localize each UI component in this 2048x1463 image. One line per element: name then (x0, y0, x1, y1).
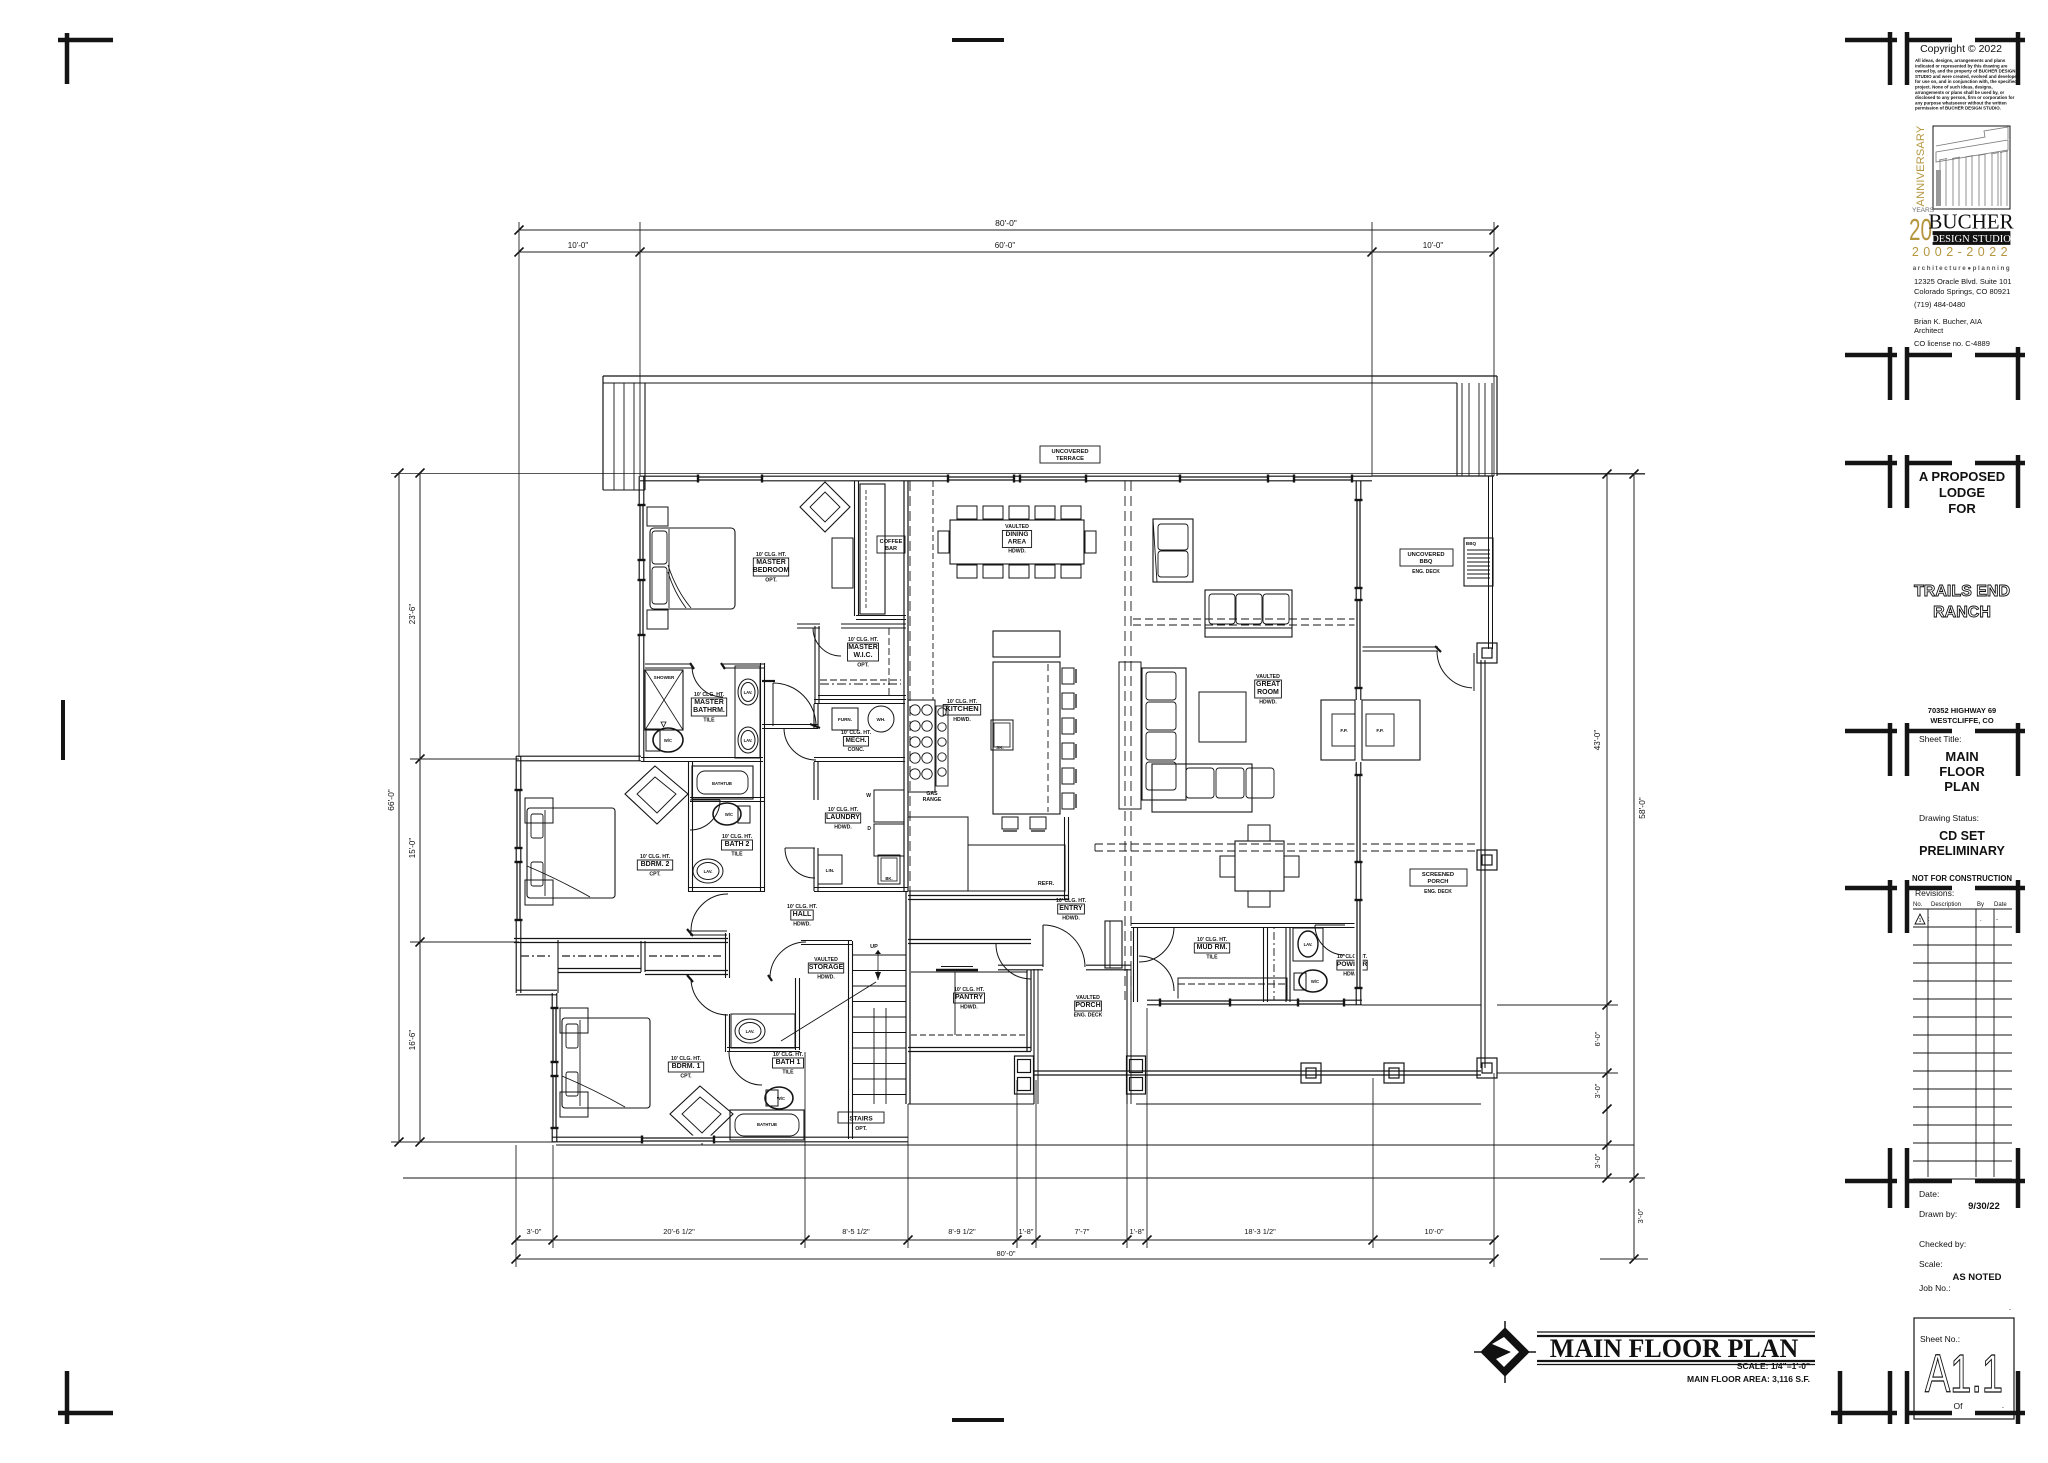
svg-text:HDWD.: HDWD. (953, 717, 971, 723)
svg-text:3'-0": 3'-0" (1593, 1153, 1602, 1168)
svg-text:PRELIMINARY: PRELIMINARY (1919, 844, 2005, 858)
svg-text:POWDER: POWDER (1337, 961, 1368, 968)
svg-text:MECH.: MECH. (846, 737, 867, 744)
svg-text:12325 Oracle Blvd. Suite 101: 12325 Oracle Blvd. Suite 101 (1914, 277, 2012, 286)
svg-text:RANCH: RANCH (1933, 604, 1991, 621)
svg-text:TRAILS END: TRAILS END (1914, 583, 2010, 600)
svg-text:BBQ: BBQ (1420, 559, 1433, 565)
svg-text:PANTRY: PANTRY (955, 994, 983, 1001)
svg-text:ENG. DECK: ENG. DECK (1074, 1013, 1103, 1019)
svg-text:Drawn by:: Drawn by: (1919, 1209, 1957, 1219)
svg-text:Sheet Title:: Sheet Title: (1919, 734, 1962, 744)
svg-text:Checked by:: Checked by: (1919, 1239, 1966, 1249)
svg-text:REFR.: REFR. (1038, 881, 1055, 887)
svg-text:16'-6": 16'-6" (408, 1030, 417, 1051)
svg-text:FOR: FOR (1948, 501, 1976, 516)
svg-text:CD SET: CD SET (1939, 829, 1985, 843)
svg-text:·: · (2002, 1403, 2005, 1412)
svg-text:CPT.: CPT. (680, 1074, 692, 1080)
svg-text:20'-6 1/2": 20'-6 1/2" (663, 1227, 695, 1236)
svg-text:10'-0": 10'-0" (568, 241, 589, 250)
svg-text:Of: Of (1954, 1401, 1964, 1411)
svg-text:ENG. DECK: ENG. DECK (1424, 889, 1452, 895)
svg-text:BATHTUB: BATHTUB (712, 781, 732, 786)
svg-text:60'-0": 60'-0" (995, 241, 1016, 250)
svg-text:10' CLG. HT.: 10' CLG. HT. (828, 807, 859, 813)
svg-text:18'-3 1/2": 18'-3 1/2" (1244, 1227, 1276, 1236)
svg-text:3'-0": 3'-0" (1593, 1083, 1602, 1098)
svg-text:LAUNDRY: LAUNDRY (826, 814, 860, 821)
svg-text:BUCHER: BUCHER (1928, 210, 2013, 234)
svg-text:3'-0": 3'-0" (1636, 1208, 1645, 1223)
svg-text:Colorado Springs, CO 80921: Colorado Springs, CO 80921 (1914, 287, 2010, 296)
svg-text:VAULTED: VAULTED (1256, 674, 1280, 680)
svg-text:F.P.: F.P. (1340, 728, 1347, 733)
svg-text:W/C: W/C (1311, 979, 1319, 984)
svg-text:HDWD.: HDWD. (1062, 916, 1080, 922)
svg-text:permission of BUCHER DESIGN ST: permission of BUCHER DESIGN STUDIO. (1915, 106, 2001, 111)
svg-text:disclosed to any person, firm: disclosed to any person, firm or corpora… (1915, 95, 2015, 100)
svg-text:A1.1: A1.1 (1925, 1344, 2003, 1404)
svg-text:BEDROOM: BEDROOM (753, 567, 790, 574)
svg-text:BAR: BAR (885, 546, 897, 552)
svg-text:Job No.:: Job No.: (1919, 1283, 1951, 1293)
svg-text:Description: Description (1931, 902, 1961, 908)
svg-text:VAULTED: VAULTED (814, 957, 838, 963)
svg-text:LIN.: LIN. (826, 868, 835, 873)
svg-text:1'-8": 1'-8" (1019, 1227, 1034, 1236)
svg-text:10' CLG. HT.: 10' CLG. HT. (671, 1056, 702, 1062)
svg-text:VAULTED: VAULTED (1005, 524, 1029, 530)
svg-text:for use on, and in conjunction: for use on, and in conjunction with, the… (1915, 79, 2017, 84)
svg-text:MUD RM.: MUD RM. (1197, 944, 1228, 951)
svg-text:NOT FOR CONSTRUCTION: NOT FOR CONSTRUCTION (1912, 874, 2012, 883)
svg-text:PORCH: PORCH (1428, 879, 1449, 885)
svg-text:W/C: W/C (725, 812, 733, 817)
svg-text:ENG. DECK: ENG. DECK (1412, 569, 1440, 575)
svg-text:6'-0": 6'-0" (1593, 1031, 1602, 1046)
svg-text:ENTRY: ENTRY (1059, 905, 1083, 912)
svg-text:10' CLG. HT.: 10' CLG. HT. (954, 987, 985, 993)
svg-text:-: - (1996, 917, 1998, 923)
svg-text:MASTER: MASTER (756, 559, 786, 566)
svg-text:·: · (2009, 1305, 2012, 1314)
svg-text:SK.: SK. (996, 745, 1004, 750)
svg-text:HDWD.: HDWD. (834, 825, 852, 831)
svg-text:10'-0": 10'-0" (1424, 1227, 1443, 1236)
svg-text:owned by, and the property of: owned by, and the property of BUCHER DES… (1915, 69, 2015, 74)
svg-text:COFFEE: COFFEE (880, 539, 903, 545)
svg-text:indicated or represented by th: indicated or represented by this drawing… (1915, 63, 2008, 68)
svg-text:MAIN: MAIN (1945, 749, 1978, 764)
svg-text:2002-2022: 2002-2022 (1912, 245, 2012, 259)
svg-text:HDWD.: HDWD. (960, 1005, 978, 1011)
svg-text:OPT.: OPT. (765, 578, 777, 584)
svg-text:80'-0": 80'-0" (995, 218, 1017, 228)
svg-text:LAV.: LAV. (744, 690, 753, 695)
svg-text:CONC.: CONC. (848, 747, 865, 753)
svg-text:project. None of such ideas,: project. None of such ideas, designs, (1915, 85, 1993, 90)
svg-text:BATH 1: BATH 1 (776, 1059, 801, 1066)
svg-text:PLAN: PLAN (1944, 779, 1979, 794)
svg-text:PORCH: PORCH (1075, 1002, 1100, 1009)
svg-text:FLOOR: FLOOR (1939, 764, 1985, 779)
svg-text:WESTCLIFFE, CO: WESTCLIFFE, CO (1930, 716, 1993, 725)
svg-text:(719) 484-0480: (719) 484-0480 (1914, 300, 1965, 309)
svg-text:MASTER: MASTER (694, 699, 724, 706)
svg-text:Revisions:: Revisions: (1915, 888, 1954, 898)
svg-text:CO license no. C-4889: CO license no. C-4889 (1914, 339, 1990, 348)
svg-text:7'-7": 7'-7" (1075, 1227, 1090, 1236)
svg-text:W/C: W/C (664, 738, 672, 743)
svg-text:BATH 2: BATH 2 (725, 841, 750, 848)
svg-text:HDWD.: HDWD. (1008, 549, 1026, 555)
svg-text:3'-0": 3'-0" (527, 1227, 542, 1236)
svg-text:58'-0": 58'-0" (1637, 797, 1647, 819)
svg-text:Drawing Status:: Drawing Status: (1919, 813, 1979, 823)
svg-text:D: D (867, 826, 871, 832)
svg-text:BATHTUB: BATHTUB (757, 1122, 777, 1127)
svg-text:Date:: Date: (1919, 1189, 1939, 1199)
svg-text:10' CLG. HT.: 10' CLG. HT. (640, 854, 671, 860)
svg-text:BDRM. 1: BDRM. 1 (672, 1063, 701, 1070)
svg-text:All ideas, designs, arrangemen: All ideas, designs, arrangements and pla… (1915, 58, 2006, 63)
svg-text:architecture●planning: architecture●planning (1913, 265, 2012, 272)
svg-text:10' CLG. HT.: 10' CLG. HT. (722, 834, 753, 840)
svg-text:KITCHEN: KITCHEN (945, 704, 978, 713)
svg-text:10' CLG. HT.: 10' CLG. HT. (787, 904, 818, 910)
svg-text:LAV.: LAV. (744, 738, 753, 743)
svg-text:10'-0": 10'-0" (1423, 241, 1444, 250)
svg-text:SCALE: 1/4"=1'-0": SCALE: 1/4"=1'-0" (1737, 1361, 1810, 1371)
svg-text:70352 HIGHWAY 69: 70352 HIGHWAY 69 (1928, 706, 1996, 715)
svg-text:43'-0": 43'-0" (1593, 730, 1602, 751)
svg-text:8'-5 1/2": 8'-5 1/2" (842, 1227, 870, 1236)
svg-text:10' CLG. HT.: 10' CLG. HT. (1337, 954, 1368, 960)
svg-text:SHOWER: SHOWER (654, 675, 675, 680)
svg-text:HDWD.: HDWD. (1259, 700, 1277, 706)
svg-text:Scale:: Scale: (1919, 1259, 1943, 1269)
svg-text:8'-9 1/2": 8'-9 1/2" (948, 1227, 976, 1236)
svg-text:TILE: TILE (703, 718, 715, 724)
svg-text:15'-0": 15'-0" (408, 838, 417, 859)
svg-text:Copyright © 2022: Copyright © 2022 (1920, 43, 2002, 55)
svg-text:CPT.: CPT. (649, 872, 661, 878)
svg-text:W: W (866, 793, 871, 799)
svg-text:No.: No. (1913, 902, 1923, 908)
svg-text:F.P.: F.P. (1376, 728, 1383, 733)
svg-text:HDWD.: HDWD. (793, 922, 811, 928)
svg-text:arrangements or plans shall be: arrangements or plans shall be used by, … (1915, 90, 2005, 95)
svg-text:WH.: WH. (877, 717, 886, 722)
svg-text:VAULTED: VAULTED (1076, 995, 1100, 1001)
svg-text:MAIN FLOOR PLAN: MAIN FLOOR PLAN (1550, 1334, 1799, 1363)
svg-text:TILE: TILE (731, 852, 743, 858)
svg-text:10' CLG. HT.: 10' CLG. HT. (1197, 937, 1228, 943)
svg-text:BBQ: BBQ (1466, 541, 1477, 546)
svg-text:10' CLG. HT.: 10' CLG. HT. (848, 637, 879, 643)
svg-text:TILE: TILE (782, 1070, 794, 1076)
svg-text:Brian K. Bucher, AIA: Brian K. Bucher, AIA (1914, 317, 1982, 326)
svg-text:10' CLG. HT.: 10' CLG. HT. (1056, 898, 1087, 904)
svg-text:Architect: Architect (1914, 326, 1944, 335)
svg-text:MAIN FLOOR AREA: 3,116 S.F.: MAIN FLOOR AREA: 3,116 S.F. (1687, 1374, 1810, 1384)
svg-text:STAIRS: STAIRS (849, 1116, 873, 1123)
svg-text:10' CLG. HT.: 10' CLG. HT. (756, 552, 787, 558)
svg-text:ROOM: ROOM (1257, 689, 1279, 696)
svg-text:66'-0": 66'-0" (386, 789, 396, 811)
svg-text:UNCOVERED: UNCOVERED (1051, 449, 1088, 455)
svg-text:9/30/22: 9/30/22 (1968, 1201, 2000, 1212)
svg-text:FURN.: FURN. (838, 717, 852, 722)
svg-text:W.I.C.: W.I.C. (853, 652, 872, 659)
svg-text:HALL: HALL (793, 911, 812, 918)
svg-text:LAV.: LAV. (1304, 942, 1313, 947)
svg-text:UP: UP (870, 944, 878, 950)
svg-text:BATHRM.: BATHRM. (693, 707, 725, 714)
svg-text:A PROPOSED: A PROPOSED (1919, 469, 2005, 484)
svg-text:23'-6": 23'-6" (408, 604, 417, 625)
svg-text:10' CLG. HT.: 10' CLG. HT. (841, 730, 872, 736)
svg-text:RANGE: RANGE (923, 797, 942, 803)
svg-text:Date: Date (1994, 902, 2007, 908)
svg-text:any purpose whatsoever without: any purpose whatsoever without the writt… (1915, 100, 2007, 105)
svg-text:1'-8": 1'-8" (1130, 1227, 1145, 1236)
svg-text:HDWD.: HDWD. (817, 975, 835, 981)
svg-text:AS NOTED: AS NOTED (1952, 1272, 2001, 1283)
svg-text:LAV.: LAV. (704, 869, 713, 874)
svg-text:AREA: AREA (1008, 539, 1027, 546)
svg-text:Sheet No.:: Sheet No.: (1920, 1334, 1960, 1344)
svg-text:MASTER: MASTER (848, 644, 878, 651)
svg-text:LODGE: LODGE (1939, 485, 1986, 500)
svg-text:DINING: DINING (1006, 531, 1029, 538)
svg-text:10' CLG. HT.: 10' CLG. HT. (773, 1052, 804, 1058)
svg-text:UNCOVERED: UNCOVERED (1407, 552, 1444, 558)
svg-text:1: 1 (1919, 918, 1922, 924)
svg-text:TILE: TILE (1206, 955, 1218, 961)
svg-text:LAV.: LAV. (746, 1029, 755, 1034)
svg-text:STORAGE: STORAGE (809, 964, 844, 971)
svg-text:SCREENED: SCREENED (1422, 872, 1454, 878)
svg-text:BK.: BK. (885, 876, 892, 881)
svg-text:TERRACE: TERRACE (1056, 456, 1084, 462)
svg-text:By: By (1977, 902, 1984, 908)
svg-text:80'-0": 80'-0" (996, 1249, 1015, 1258)
svg-text:ANNIVERSARY: ANNIVERSARY (1915, 125, 1927, 206)
svg-text:OPT.: OPT. (855, 1126, 867, 1132)
svg-text:W/C: W/C (777, 1096, 785, 1101)
svg-text:OPT.: OPT. (857, 663, 869, 669)
svg-text:STUDIO and were created, evolv: STUDIO and were created, evolved and dev… (1915, 74, 2020, 79)
svg-text:10' CLG. HT.: 10' CLG. HT. (694, 692, 725, 698)
svg-text:DESIGN STUDIO: DESIGN STUDIO (1931, 234, 2011, 245)
svg-text:GREAT: GREAT (1256, 681, 1281, 688)
svg-text:BDRM. 2: BDRM. 2 (641, 861, 670, 868)
